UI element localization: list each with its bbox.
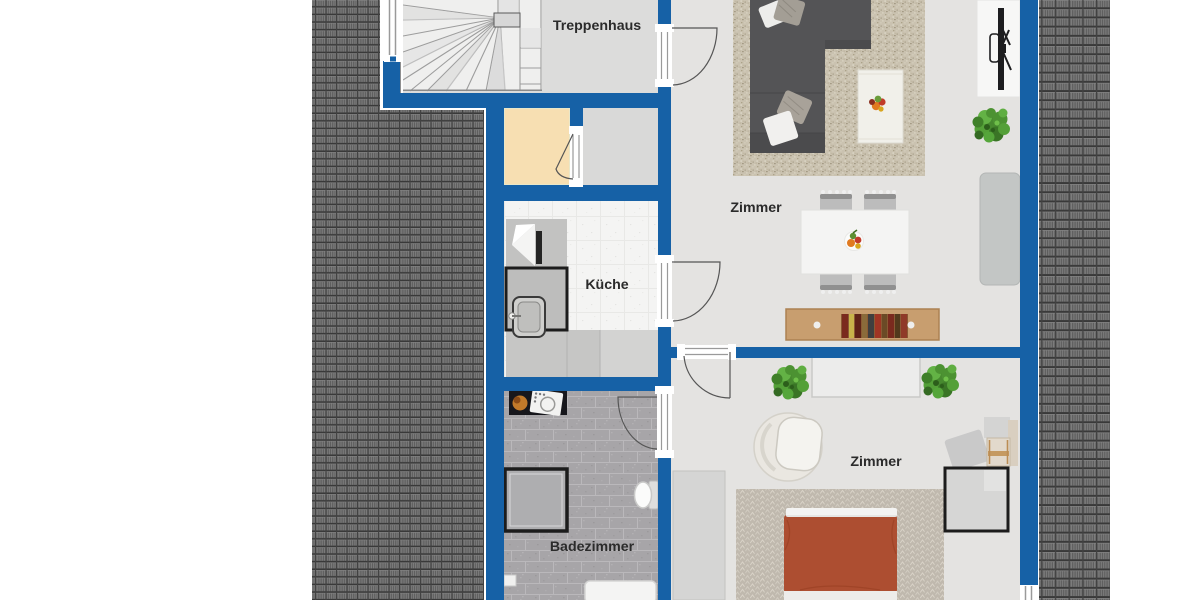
svg-text:Küche: Küche [585,277,628,293]
svg-text:Badezimmer: Badezimmer [550,539,635,555]
svg-text:Treppenhaus: Treppenhaus [553,18,641,34]
svg-text:Zimmer: Zimmer [730,200,782,216]
svg-text:Zimmer: Zimmer [850,454,902,470]
